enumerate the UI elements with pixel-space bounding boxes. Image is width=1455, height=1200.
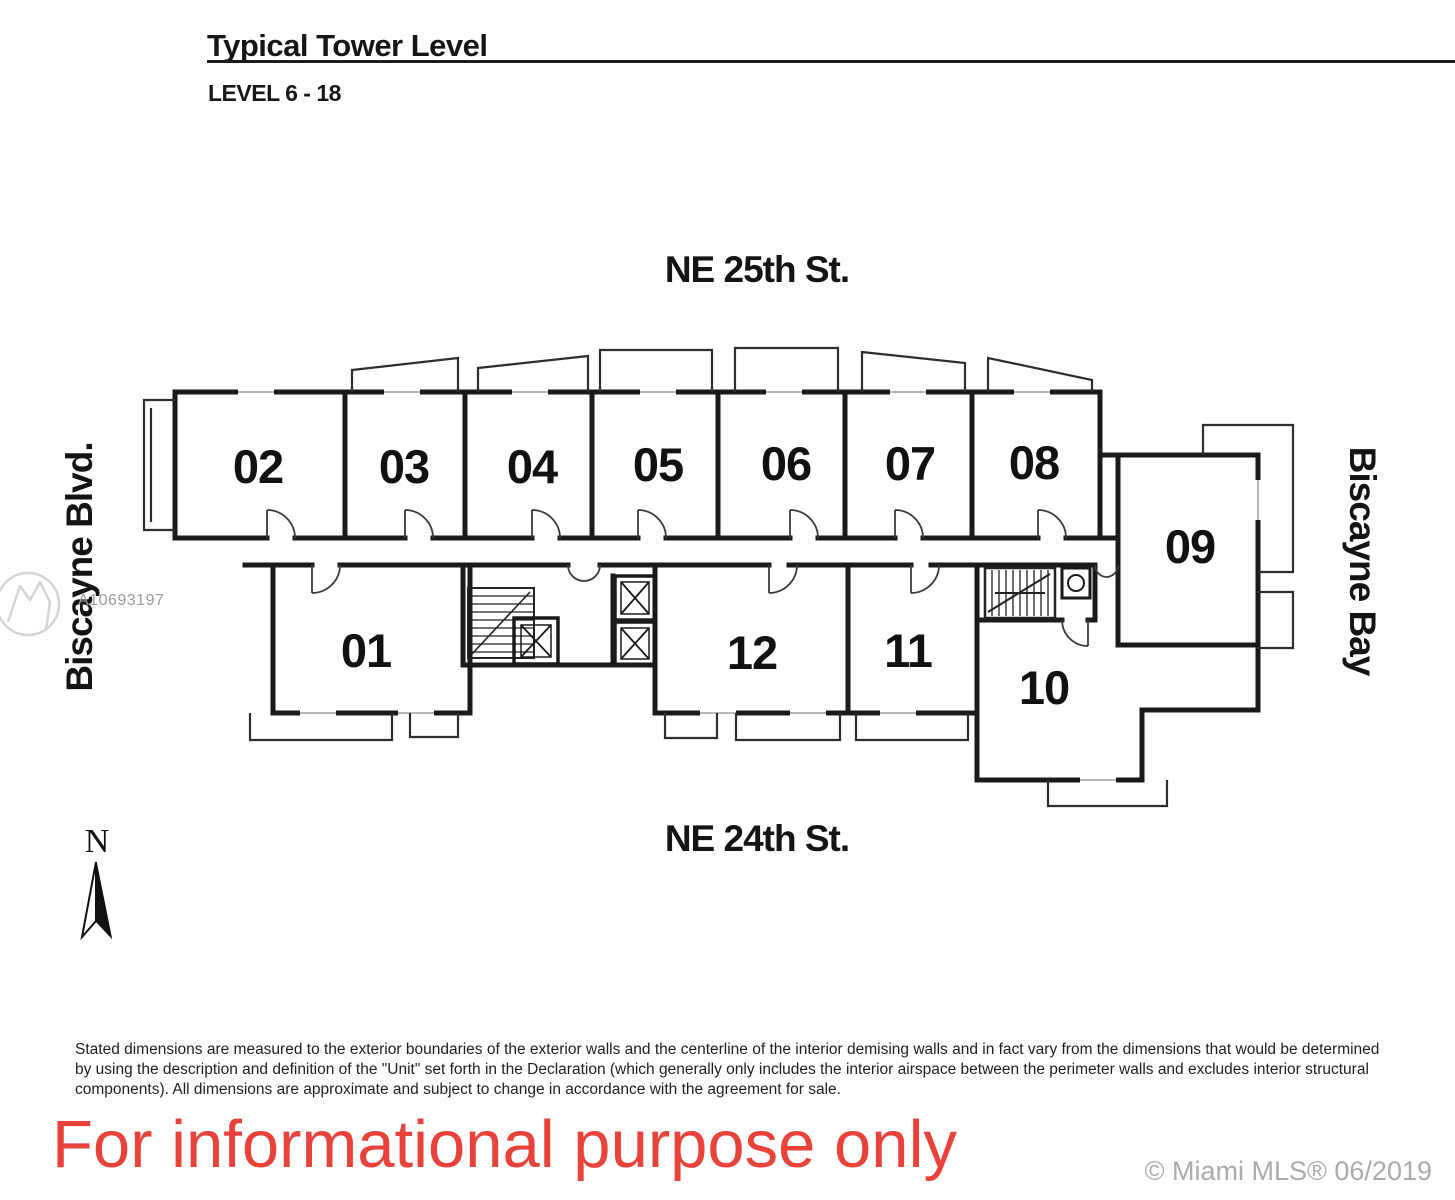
door-arcs <box>267 510 1118 646</box>
floorplan-page: Typical Tower Level LEVEL 6 - 18 NE 25th… <box>0 0 1455 1200</box>
informational-notice: For informational purpose only <box>52 1106 957 1183</box>
elevator-icon <box>615 576 655 620</box>
trash-chute-icon <box>1062 568 1090 598</box>
unit-11-label: 11 <box>884 624 932 677</box>
unit-06-label: 06 <box>761 437 811 490</box>
unit-08-label: 08 <box>1009 436 1059 489</box>
unit-10-label: 10 <box>1019 661 1069 714</box>
elevator-icon <box>514 618 558 664</box>
staircase-icon <box>468 588 534 658</box>
staircase-icon <box>985 568 1055 618</box>
north-arrow: N <box>82 823 111 937</box>
north-arrow-icon <box>82 862 96 937</box>
north-label: N <box>85 823 110 860</box>
unit-03-label: 03 <box>379 440 429 493</box>
elevator-icon <box>615 622 655 665</box>
unit-07-label: 07 <box>885 437 935 490</box>
unit-labels: 01 02 03 04 05 06 07 08 09 10 11 12 <box>233 436 1215 714</box>
unit-01-label: 01 <box>341 624 391 677</box>
unit-12-label: 12 <box>727 626 777 679</box>
floor-plan-svg: 01 02 03 04 05 06 07 08 09 10 11 12 N <box>0 0 1455 1200</box>
unit-09-label: 09 <box>1165 520 1215 573</box>
mls-credit: © Miami MLS® 06/2019 <box>1100 1156 1432 1187</box>
unit-04-label: 04 <box>507 440 558 493</box>
disclaimer-text: Stated dimensions are measured to the ex… <box>75 1040 1390 1100</box>
unit-02-label: 02 <box>233 440 283 493</box>
unit-05-label: 05 <box>633 438 683 491</box>
north-arrow-icon <box>96 862 111 937</box>
